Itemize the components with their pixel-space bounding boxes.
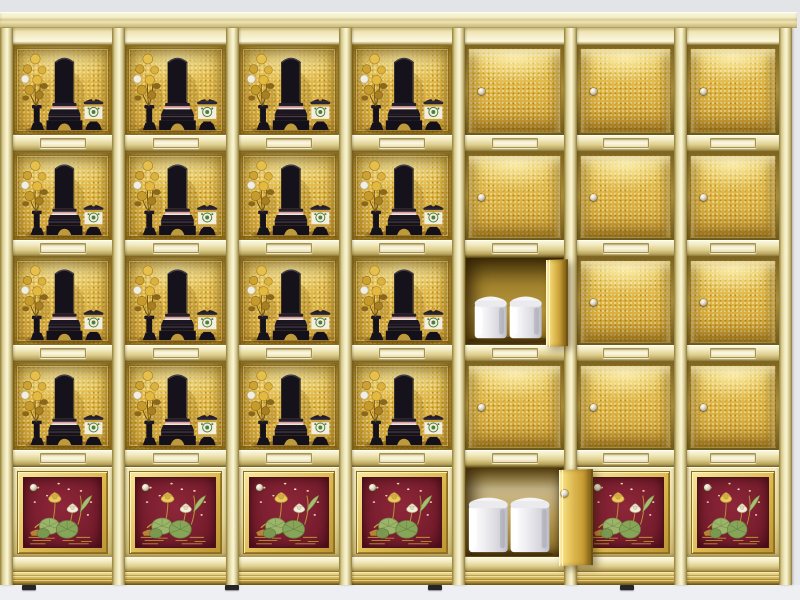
door-knob (478, 404, 485, 411)
white-lotus (294, 504, 305, 513)
door-cell-r2-c5 (465, 152, 564, 240)
cabinet-foot (225, 585, 239, 590)
panel-knob (704, 484, 711, 491)
urn-pair (466, 468, 563, 556)
nameplate-slot (40, 138, 86, 148)
shelf-front-r4-c7 (687, 450, 779, 467)
door-panel (690, 48, 776, 133)
flower-arrangement (247, 371, 276, 445)
offering-cup (310, 412, 330, 445)
yellow-lotus (612, 492, 624, 502)
offering-cup (197, 412, 217, 445)
shelf-front-r1-c3 (239, 135, 339, 152)
altar-set (353, 363, 451, 449)
door-cell-r1-c5 (465, 45, 564, 135)
flower-arrangement (360, 371, 389, 445)
urn (510, 296, 542, 338)
offering-cup (197, 202, 217, 235)
shelf-front-r2-c7 (687, 240, 779, 257)
cabinet-cornice (0, 12, 797, 28)
cabinet-foot (22, 585, 36, 590)
yellow-lotus (49, 492, 61, 502)
cabinet-foot (620, 585, 634, 590)
altar-niche-r2-c2 (125, 152, 226, 240)
offering-cup (84, 412, 104, 445)
altar-set (14, 153, 111, 239)
shelf-front-r3-c6 (577, 345, 674, 362)
door-knob (590, 194, 597, 201)
altar-set (240, 46, 338, 134)
door-cell-r4-c6 (577, 362, 674, 450)
door-knob (700, 404, 707, 411)
lotus-panel-cell-c7 (687, 467, 779, 557)
nameplate-slot (492, 453, 538, 463)
shelf-front-r1-c5 (465, 135, 564, 152)
door-knob (590, 88, 597, 95)
altar-niche-r4-c2 (125, 362, 226, 450)
flower-arrangement (360, 266, 389, 340)
lotus-panel-frame (356, 471, 448, 554)
flower-arrangement (360, 161, 389, 235)
nameplate-slot (153, 453, 199, 463)
lotus-panel-frame (581, 471, 670, 554)
door-panel (580, 365, 671, 448)
offering-cup (84, 97, 104, 131)
white-lotus (737, 504, 747, 513)
frame-left-post (0, 28, 13, 585)
cabinet-body (0, 28, 792, 585)
flower-arrangement (360, 54, 389, 130)
flower-arrangement (247, 54, 276, 130)
flower-arrangement (21, 54, 50, 130)
open-door (559, 469, 593, 566)
panel-knob (142, 484, 149, 491)
door-knob (590, 404, 597, 411)
altar-niche-r3-c4 (352, 257, 452, 345)
offering-cup (310, 307, 330, 340)
altar-niche-r4-c4 (352, 362, 452, 450)
altar-niche-r1-c2 (125, 45, 226, 135)
frame-divider-post (226, 28, 239, 585)
open-compartment-r5-c5 (465, 467, 564, 557)
lotus-panel-cell-c4 (352, 467, 452, 557)
altar-set (240, 153, 338, 239)
nameplate-slot (153, 348, 199, 358)
door-knob (590, 299, 597, 306)
altar-set (126, 363, 225, 449)
nameplate-slot (492, 243, 538, 253)
altar-set (353, 258, 451, 344)
shelf-front-r2-c4 (352, 240, 452, 257)
door-panel (468, 365, 561, 448)
shelf-front-r4-c6 (577, 450, 674, 467)
altar-niche-r2-c4 (352, 152, 452, 240)
nameplate-slot (603, 138, 649, 148)
yellow-lotus (161, 492, 174, 502)
door-panel (580, 260, 671, 343)
cabinet-foot (428, 585, 442, 590)
shelf-front-r3-c2 (125, 345, 226, 362)
lotus-panel-frame (691, 471, 775, 554)
offering-cup (310, 202, 330, 235)
shelf-front-r2-c1 (13, 240, 112, 257)
nameplate-slot (266, 453, 312, 463)
altar-set (14, 258, 111, 344)
nameplate-slot (40, 348, 86, 358)
compartment-interior (466, 468, 563, 556)
nameplate-slot (266, 348, 312, 358)
shelf-front-r4-c2 (125, 450, 226, 467)
nameplate-slot (492, 348, 538, 358)
offering-cup (197, 97, 217, 131)
flower-arrangement (247, 266, 276, 340)
shelf-front-r1-c2 (125, 135, 226, 152)
door-panel (690, 155, 776, 238)
shelf-front-r4-c5 (465, 450, 564, 467)
altar-niche-r3-c2 (125, 257, 226, 345)
door-cell-r3-c6 (577, 257, 674, 345)
yellow-lotus (275, 492, 287, 502)
panel-knob (369, 484, 376, 491)
lotus-panel (697, 477, 769, 548)
open-compartment-r3-c5 (465, 257, 564, 345)
nameplate-slot (266, 138, 312, 148)
flower-arrangement (21, 371, 50, 445)
columbarium-scene (0, 0, 800, 600)
door-knob (561, 490, 568, 497)
flower-arrangement (133, 54, 162, 130)
lotus-panel-frame (129, 471, 222, 554)
panel-knob (30, 484, 37, 491)
altar-set (126, 46, 225, 134)
nameplate-slot (603, 453, 649, 463)
shelf-front-r3-c1 (13, 345, 112, 362)
door-panel (580, 48, 671, 133)
altar-niche-r1-c4 (352, 45, 452, 135)
altar-set (14, 363, 111, 449)
shelf-front-r1-c7 (687, 135, 779, 152)
shelf-front-r4-c1 (13, 450, 112, 467)
flower-arrangement (21, 161, 50, 235)
lotus-panel-cell-c2 (125, 467, 226, 557)
urn (511, 498, 550, 553)
offering-cup (423, 202, 443, 235)
nameplate-slot (379, 453, 425, 463)
shelf-front-r3-c3 (239, 345, 339, 362)
nameplate-slot (40, 453, 86, 463)
open-door (546, 259, 568, 347)
door-panel (690, 365, 776, 448)
nameplate-slot (710, 243, 756, 253)
shelf-front-r2-c2 (125, 240, 226, 257)
nameplate-slot (379, 348, 425, 358)
altar-set (126, 153, 225, 239)
shelf-front-r1-c4 (352, 135, 452, 152)
altar-niche-r3-c1 (13, 257, 112, 345)
offering-cup (423, 97, 443, 131)
altar-niche-r1-c3 (239, 45, 339, 135)
door-cell-r2-c6 (577, 152, 674, 240)
nameplate-slot (603, 348, 649, 358)
offering-cup (423, 412, 443, 445)
door-cell-r1-c6 (577, 45, 674, 135)
flower-arrangement (133, 161, 162, 235)
lotus-panel (587, 477, 664, 548)
lotus-panel (249, 477, 329, 548)
shelf-front-r1-c1 (13, 135, 112, 152)
shelf-front-r2-c6 (577, 240, 674, 257)
nameplate-slot (492, 138, 538, 148)
altar-set (14, 46, 111, 134)
frame-divider-post (452, 28, 465, 585)
altar-niche-r4-c1 (13, 362, 112, 450)
shelf-front-r3-c4 (352, 345, 452, 362)
nameplate-slot (40, 243, 86, 253)
urn (475, 296, 507, 338)
altar-niche-r2-c1 (13, 152, 112, 240)
door-panel (468, 48, 561, 133)
panel-knob (594, 484, 601, 491)
white-lotus (180, 504, 191, 513)
door-cell-r4-c5 (465, 362, 564, 450)
door-panel (580, 155, 671, 238)
altar-niche-r4-c3 (239, 362, 339, 450)
flower-arrangement (247, 161, 276, 235)
door-cell-r2-c7 (687, 152, 779, 240)
lotus-panel-frame (243, 471, 335, 554)
door-cell-r4-c7 (687, 362, 779, 450)
white-lotus (630, 504, 641, 513)
door-cell-r3-c7 (687, 257, 779, 345)
altar-set (126, 258, 225, 344)
lotus-panel (23, 477, 102, 548)
panel-knob (256, 484, 263, 491)
white-lotus (67, 504, 78, 513)
door-knob (478, 88, 485, 95)
lotus-panel-cell-c3 (239, 467, 339, 557)
nameplate-slot (379, 243, 425, 253)
nameplate-slot (710, 348, 756, 358)
nameplate-slot (603, 243, 649, 253)
yellow-lotus (720, 492, 731, 502)
offering-cup (197, 307, 217, 340)
altar-set (353, 46, 451, 134)
door-knob (700, 194, 707, 201)
nameplate-slot (710, 138, 756, 148)
altar-set (240, 363, 338, 449)
shelf-front-r4-c3 (239, 450, 339, 467)
lotus-panel-cell-c1 (13, 467, 112, 557)
nameplate-slot (153, 138, 199, 148)
lotus-panel (362, 477, 442, 548)
nameplate-slot (710, 453, 756, 463)
altar-niche-r1-c1 (13, 45, 112, 135)
shelf-front-r2-c5 (465, 240, 564, 257)
background-wall-strip (0, 0, 800, 12)
door-cell-r1-c7 (687, 45, 779, 135)
floor (0, 585, 800, 600)
flower-arrangement (133, 266, 162, 340)
urn (469, 498, 508, 553)
lotus-panel-frame (17, 471, 108, 554)
nameplate-slot (379, 138, 425, 148)
lotus-panel (135, 477, 216, 548)
door-panel (690, 260, 776, 343)
offering-cup (423, 307, 443, 340)
flower-arrangement (133, 371, 162, 445)
shelf-front-r2-c3 (239, 240, 339, 257)
shelf-front-r4-c4 (352, 450, 452, 467)
door-knob (700, 299, 707, 306)
door-knob (478, 194, 485, 201)
shelf-front-r3-c5 (465, 345, 564, 362)
white-lotus (407, 504, 418, 513)
frame-divider-post (339, 28, 352, 585)
altar-niche-r3-c3 (239, 257, 339, 345)
flower-arrangement (21, 266, 50, 340)
door-knob (700, 88, 707, 95)
altar-niche-r2-c3 (239, 152, 339, 240)
offering-cup (84, 307, 104, 340)
door-panel (468, 155, 561, 238)
altar-set (240, 258, 338, 344)
shelf-front-r3-c7 (687, 345, 779, 362)
nameplate-slot (153, 243, 199, 253)
frame-right-post (779, 28, 792, 585)
offering-cup (310, 97, 330, 131)
yellow-lotus (388, 492, 400, 502)
shelf-front-r1-c6 (577, 135, 674, 152)
nameplate-slot (266, 243, 312, 253)
offering-cup (84, 202, 104, 235)
frame-divider-post (674, 28, 687, 585)
frame-divider-post (112, 28, 125, 585)
altar-set (353, 153, 451, 239)
